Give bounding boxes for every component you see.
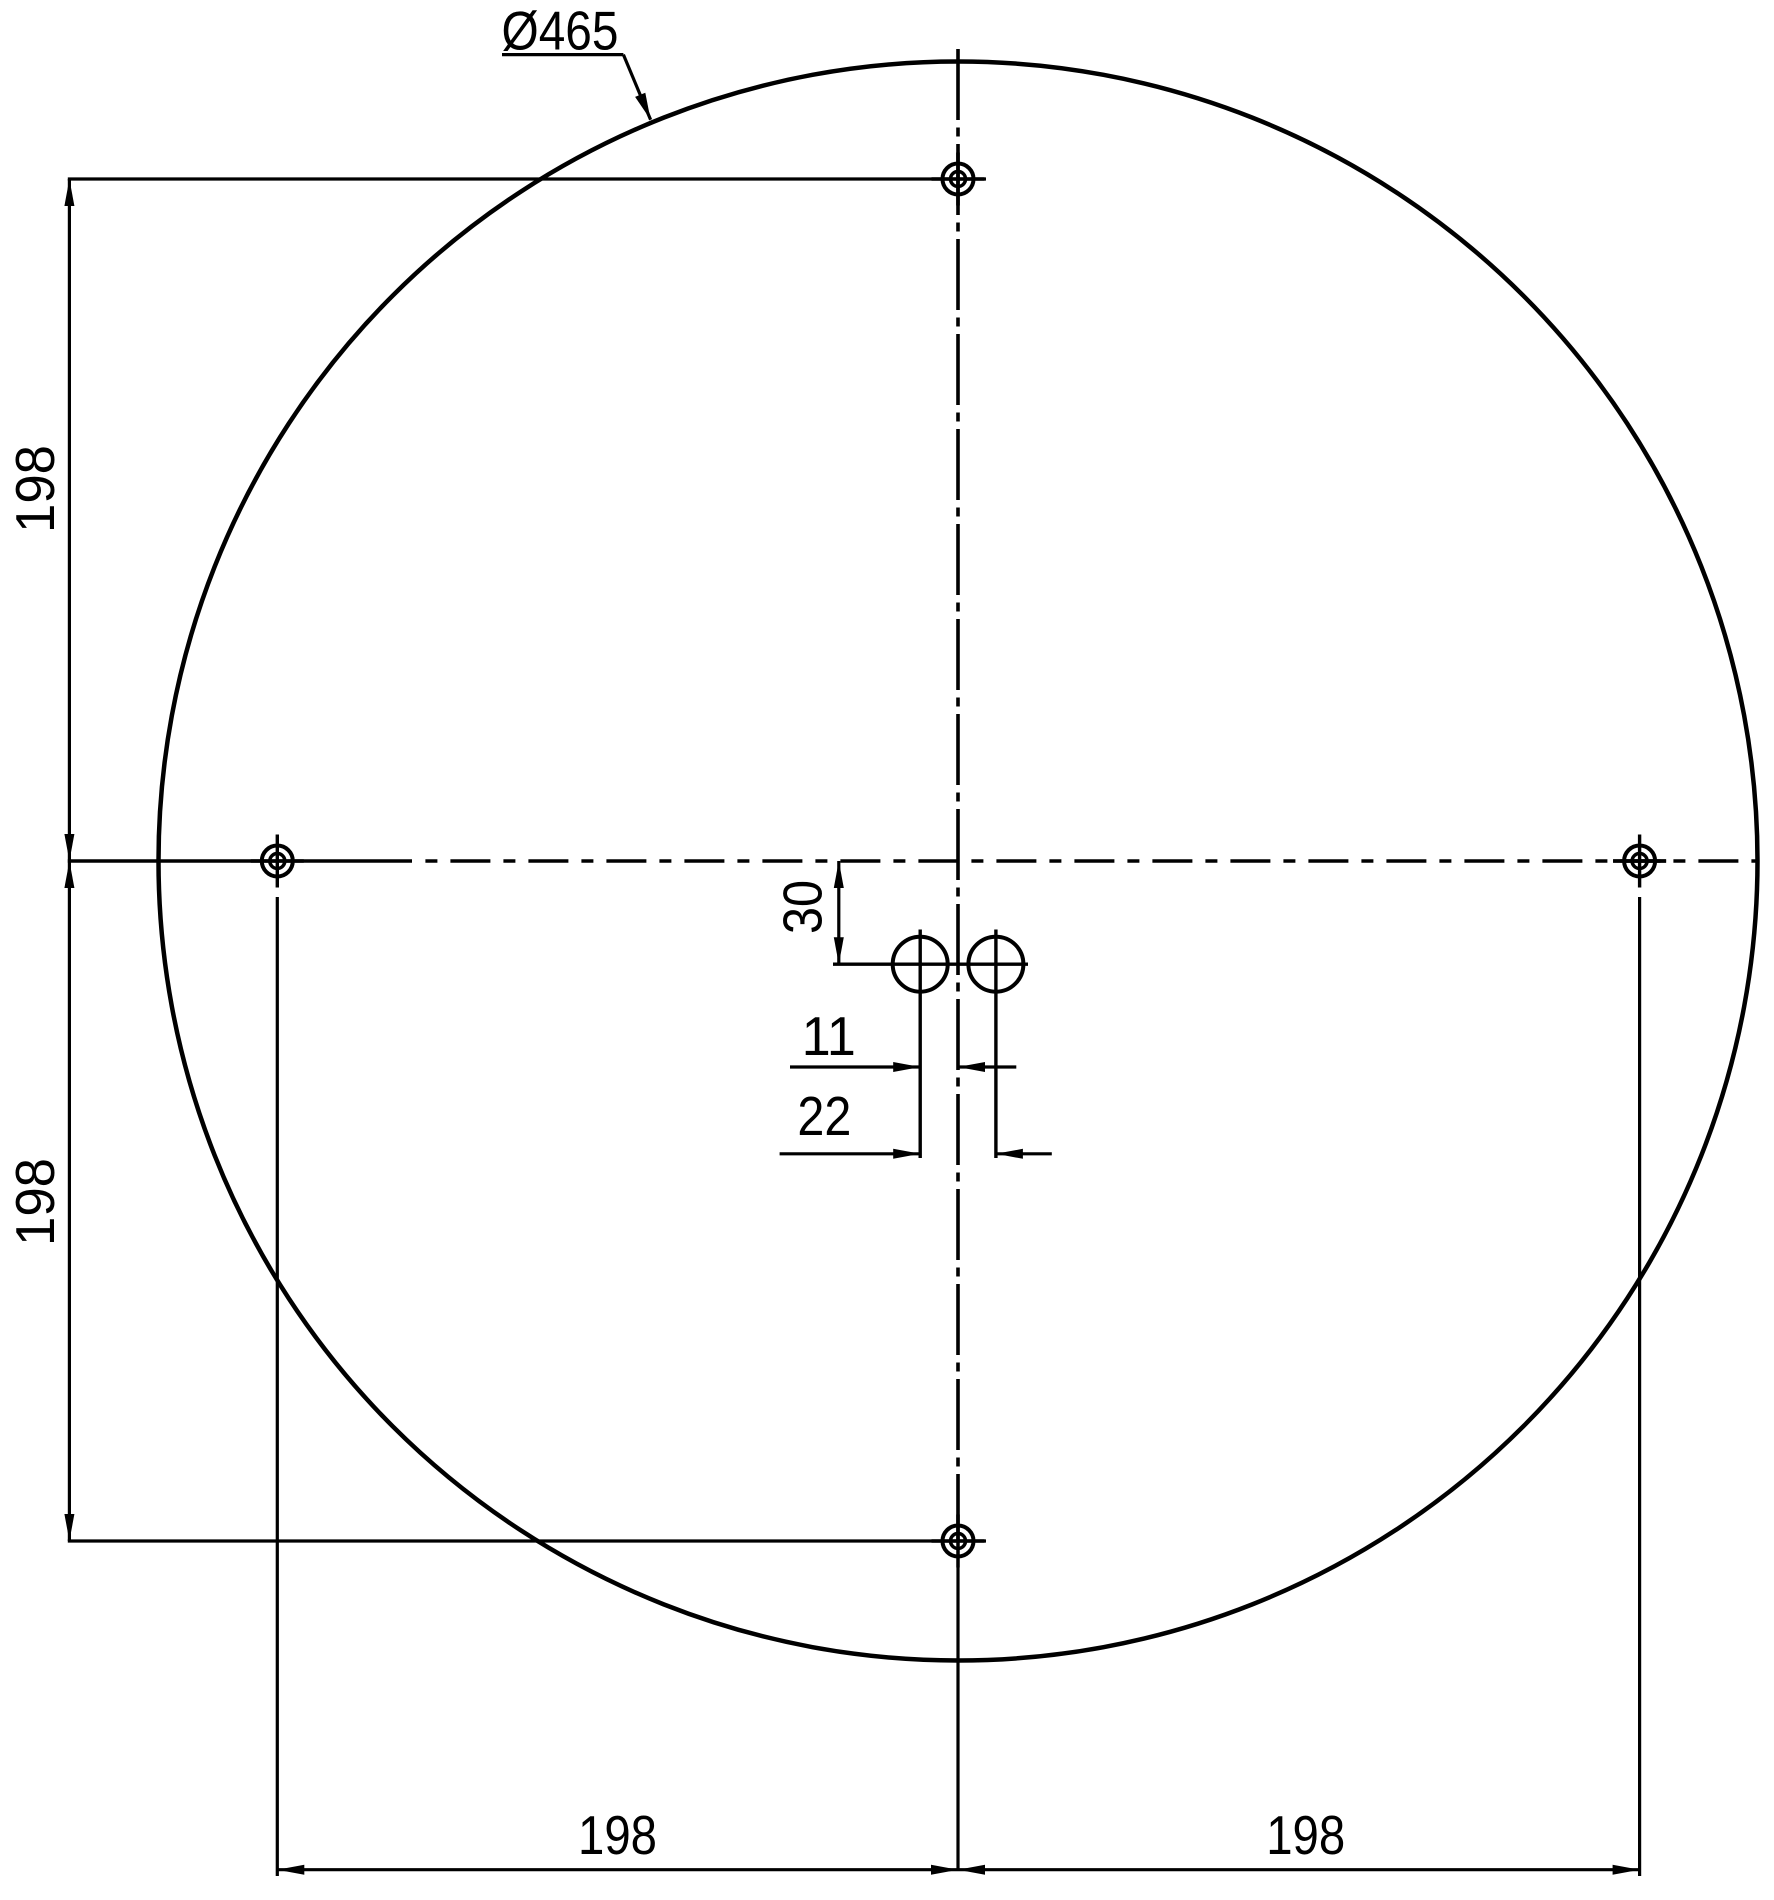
svg-text:198: 198 — [4, 1158, 66, 1246]
svg-text:Ø465: Ø465 — [502, 0, 619, 62]
svg-text:11: 11 — [802, 1005, 856, 1067]
svg-text:22: 22 — [797, 1085, 851, 1147]
svg-text:198: 198 — [578, 1804, 657, 1866]
svg-text:198: 198 — [4, 445, 66, 533]
svg-text:198: 198 — [1266, 1804, 1345, 1866]
svg-text:30: 30 — [772, 880, 834, 934]
